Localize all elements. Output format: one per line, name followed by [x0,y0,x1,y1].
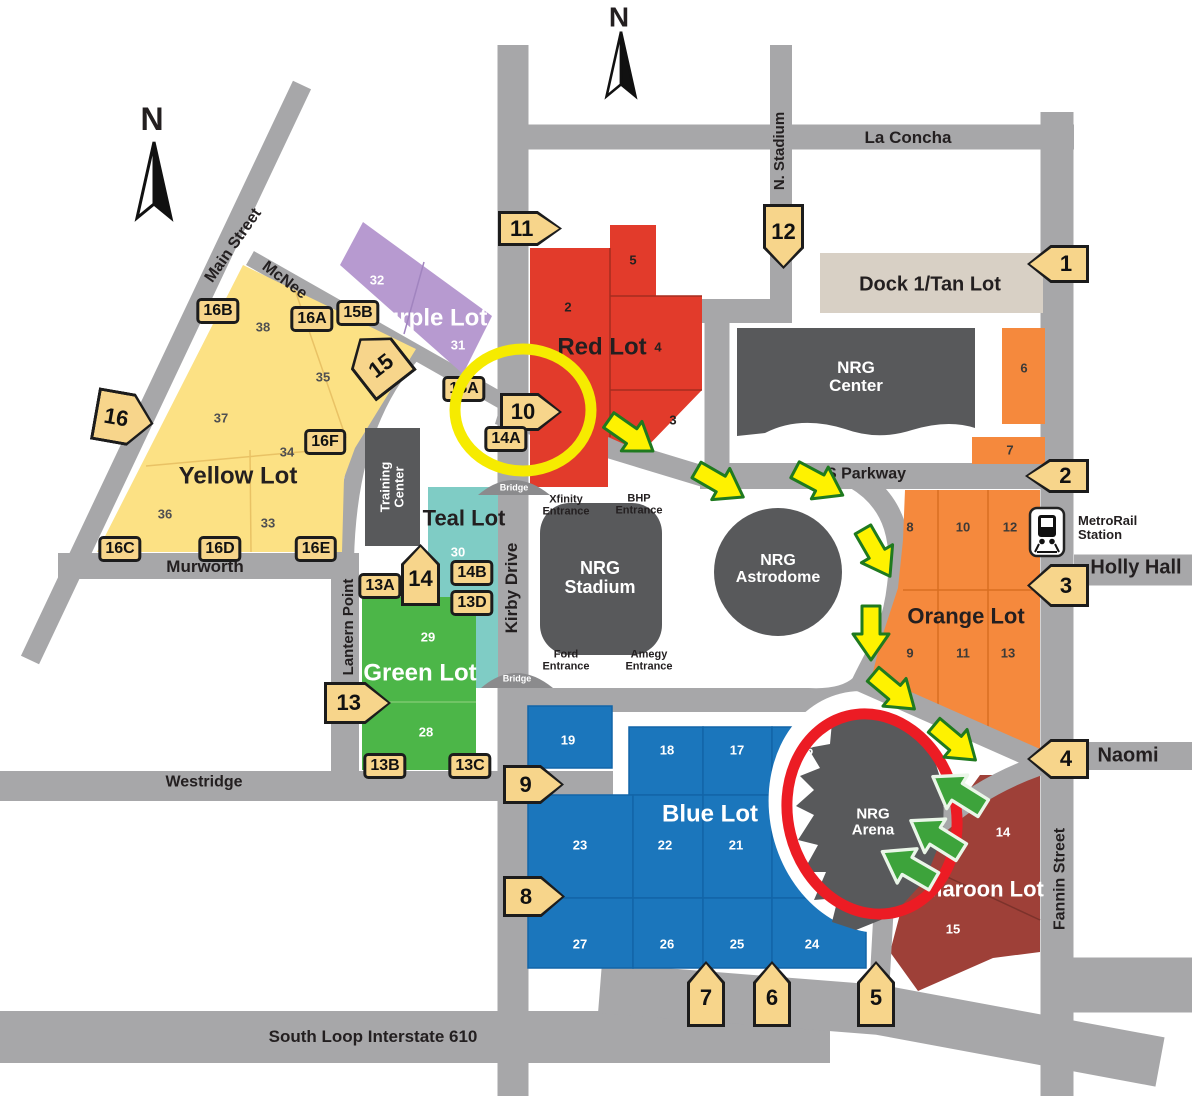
lot-section-yellow-37: 37 [214,411,228,426]
lot-section-blue-20: 20 [783,838,797,853]
orange-lot-6-shape [1002,328,1045,424]
compass-north-label-top: N [609,2,629,31]
entrance-label-xfinity: Xfinity Entrance [537,494,595,517]
lot-section-yellow-35: 35 [316,370,330,385]
nrg-arena-label: NRG Arena [846,806,901,838]
street-label-naomi: Naomi [1097,746,1158,767]
compass-north-label-left: N [140,103,163,137]
bridge-south-label: Bridge [503,674,532,683]
sub-gate-badge-16E: 16E [295,536,337,562]
gate-1-label: 1 [1060,251,1072,277]
lot-section-red-2: 2 [564,300,571,315]
lot-section-yellow-33: 33 [261,516,275,531]
green-lot-label: Green Lot [363,660,476,685]
lot-section-blue-19: 19 [561,733,575,748]
sub-gate-badge-16B: 16B [196,298,239,324]
gate-14-label: 14 [408,566,432,592]
lot-section-blue-23: 23 [573,838,587,853]
lot-section-orange-10: 10 [956,520,970,535]
gate-15-label: 15 [364,348,399,384]
tan-lot-label: Dock 1/Tan Lot [859,275,1001,296]
gate-8-label: 8 [520,884,532,910]
lot-section-blue-18: 18 [660,743,674,758]
sub-gate-badge-16A: 16A [290,306,333,332]
entrance-label-ford: Ford Entrance [537,649,595,672]
lot-section-orange-11: 11 [956,646,970,661]
training-center-label: Training Center [378,448,405,526]
nrg-park-map: Main Street McNee Murworth Lantern Point… [0,0,1192,1096]
gate-7-label: 7 [700,985,712,1011]
sub-gate-badge-13C: 13C [448,753,491,779]
street-label-south-loop: South Loop Interstate 610 [269,1028,478,1046]
gate-10-label: 10 [511,399,535,425]
street-label-holly-hall: Holly Hall [1090,558,1181,579]
gate-5-label: 5 [870,985,882,1011]
road-stadium-south [513,686,862,700]
lot-section-purple-32: 32 [370,273,384,288]
sub-gate-badge-16F: 16F [304,429,346,455]
street-label-s-parkway: S Parkway [826,467,906,484]
sub-gate-badge-15A: 15A [442,376,485,402]
lot-section-blue-21: 21 [729,838,743,853]
lot-section-red-3: 3 [669,413,676,428]
map-base-layer [0,0,1192,1096]
lot-section-maroon-15: 15 [946,922,960,937]
gate-2-label: 2 [1059,463,1071,489]
sub-gate-badge-16D: 16D [198,536,241,562]
blue-lot-label: Blue Lot [662,801,758,826]
nrg-astrodome-label: NRG Astrodome [726,553,831,587]
gate-9-label: 9 [519,772,531,798]
lot-section-yellow-38: 38 [256,320,270,335]
train-icon [1030,508,1064,556]
lot-section-orange-13: 13 [1001,646,1015,661]
gate-13-label: 13 [337,690,361,716]
street-label-la-concha: La Concha [865,129,952,147]
yellow-lot-label: Yellow Lot [179,463,298,488]
sub-gate-badge-13D: 13D [450,590,493,616]
sub-gate-badge-13B: 13B [363,753,406,779]
purple-lot-label: Purple Lot [369,305,488,330]
gate-6-label: 6 [766,985,778,1011]
teal-lot-label: Teal Lot [423,506,506,529]
lot-section-red-4: 4 [654,340,661,355]
gate-3-label: 3 [1060,573,1072,599]
lot-section-purple-31: 31 [451,338,465,353]
orange-lot-label: Orange Lot [907,604,1024,627]
lot-section-blue-25: 25 [730,937,744,952]
lot-section-blue-16: 16 [799,743,813,758]
entrance-label-amegy: Amegy Entrance [620,649,678,672]
lot-section-green-28: 28 [419,725,433,740]
lot-section-orange-6: 6 [1020,361,1027,376]
sub-gate-badge-14A: 14A [484,426,527,452]
lot-section-blue-26: 26 [660,937,674,952]
sub-gate-badge-16C: 16C [98,536,141,562]
street-label-westridge: Westridge [165,775,242,792]
street-label-fannin-street: Fannin Street [1053,828,1070,930]
lot-section-blue-24: 24 [805,937,819,952]
entrance-label-bhp: BHP Entrance [610,493,668,516]
street-label-lantern-point: Lantern Point [341,579,357,676]
maroon-lot-label: Maroon Lot [924,877,1044,900]
lot-section-yellow-34: 34 [280,445,294,460]
gate-12-label: 12 [771,219,795,245]
lot-section-teal-30: 30 [451,545,465,560]
compass-icon-left [137,142,171,218]
lot-section-red-5: 5 [629,253,636,268]
lot-section-maroon-14: 14 [996,825,1010,840]
compass-icon-top [607,32,636,97]
metrorail-station-label: MetroRail Station [1078,514,1164,541]
red-lot-label: Red Lot [557,334,646,359]
bridge-north-label: Bridge [500,483,529,492]
lot-section-orange-8: 8 [906,520,913,535]
sub-gate-badge-15B: 15B [336,300,379,326]
lot-section-blue-22: 22 [658,838,672,853]
lot-section-orange-7: 7 [1006,443,1013,458]
sub-gate-badge-14B: 14B [450,560,493,586]
nrg-center-label: NRG Center [821,359,891,395]
gate-16-label: 16 [102,402,131,432]
lot-section-blue-17: 17 [730,743,744,758]
gate-11-label: 11 [510,216,533,242]
street-label-kirby-drive: Kirby Drive [503,543,521,634]
lot-section-orange-12: 12 [1003,520,1017,535]
lot-section-orange-9: 9 [906,646,913,661]
lot-section-yellow-36: 36 [158,507,172,522]
lot-section-blue-27: 27 [573,937,587,952]
gate-4-label: 4 [1060,746,1072,772]
lot-section-green-29: 29 [421,630,435,645]
sub-gate-badge-13A: 13A [358,573,401,599]
street-label-n-stadium: N. Stadium [772,112,788,190]
nrg-stadium-label: NRG Stadium [555,559,645,597]
